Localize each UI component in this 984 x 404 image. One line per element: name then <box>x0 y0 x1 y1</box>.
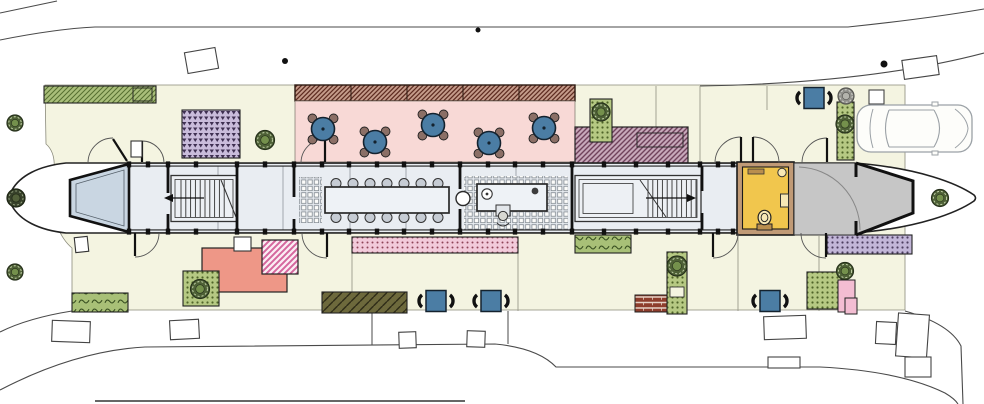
road-marking <box>184 47 218 73</box>
road-marking <box>768 357 800 368</box>
site-plan-page <box>0 0 984 404</box>
round-table <box>529 113 559 143</box>
street-tree <box>7 264 23 280</box>
paving-pink-hatch <box>262 240 298 274</box>
road-edge-line <box>0 9 984 40</box>
round-table <box>308 114 338 144</box>
planter-tree <box>667 256 687 276</box>
entry-step <box>234 237 251 251</box>
planter-tree <box>837 263 854 280</box>
person-figure <box>498 211 507 220</box>
toilet-bowl <box>758 210 771 224</box>
round-table <box>474 128 504 158</box>
dining-table <box>325 187 449 213</box>
road-marking <box>399 332 417 349</box>
entry-step <box>74 236 88 252</box>
planter-box-detail <box>670 287 684 297</box>
burner <box>532 188 539 195</box>
road-marking <box>467 331 486 348</box>
round-table <box>418 110 448 140</box>
road-marking <box>764 315 807 339</box>
road-marking <box>170 319 200 339</box>
stair-flight-east <box>575 176 701 222</box>
paving-purple-square <box>182 110 240 158</box>
pergola-strip <box>295 85 575 101</box>
road-marking <box>869 90 884 104</box>
gray-tree <box>838 88 854 104</box>
planter-tree <box>592 103 610 121</box>
bow-capstan <box>7 189 25 207</box>
washbasin <box>778 168 786 176</box>
road-marking <box>902 56 939 80</box>
road-edge-line <box>0 1 57 13</box>
stern-tree <box>932 190 949 207</box>
planter-bed <box>44 86 156 103</box>
porthole <box>456 192 470 206</box>
dining-tiles <box>299 177 322 223</box>
road-edge-line <box>700 53 984 86</box>
planter-tree <box>836 115 854 133</box>
shrub-bed <box>72 293 128 312</box>
street-light-dot <box>881 61 888 68</box>
street-tree <box>7 115 23 131</box>
planter-pink <box>845 298 857 314</box>
shrub-bed <box>575 235 631 253</box>
road-marking <box>905 357 931 377</box>
planting-strip-pink <box>352 237 518 253</box>
stair-flight-west <box>164 176 237 222</box>
parked-car <box>857 102 972 155</box>
road-marking <box>52 320 91 342</box>
road-edge-line <box>0 344 958 404</box>
round-table <box>360 127 390 157</box>
entry-step <box>131 141 142 157</box>
road-marking <box>875 321 896 344</box>
planter-square <box>807 272 841 309</box>
paving-brick <box>635 295 668 312</box>
site-plan-canvas <box>0 0 984 404</box>
street-light-dot <box>282 58 288 64</box>
planter-tree <box>191 280 210 299</box>
sink-drain <box>486 193 489 196</box>
wall-cabinet <box>781 194 789 207</box>
paving-purple-strip <box>827 235 912 254</box>
street-tree <box>256 131 275 150</box>
paving-herringbone <box>322 292 407 313</box>
road-marking <box>896 313 930 358</box>
bathroom-shelf <box>748 169 764 174</box>
street-light-dot <box>476 28 481 33</box>
